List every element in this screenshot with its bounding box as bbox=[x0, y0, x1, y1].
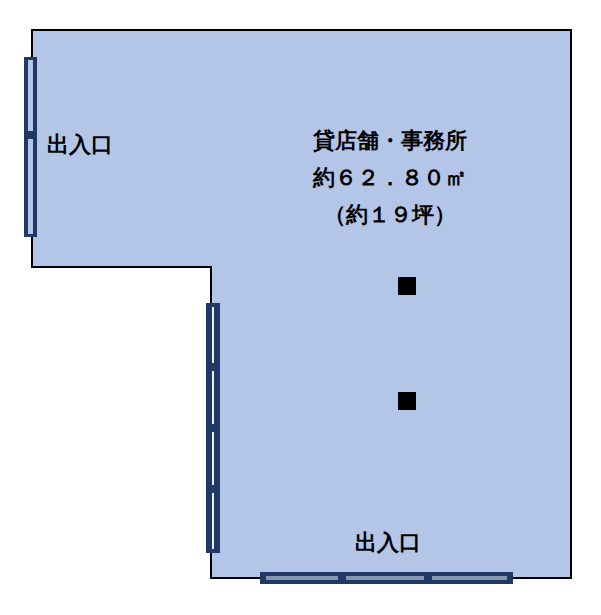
left-entrance-door-icon bbox=[24, 57, 37, 237]
door-pane bbox=[28, 139, 33, 234]
pillar-icon bbox=[398, 277, 416, 295]
window-pane bbox=[212, 493, 214, 549]
door-pane bbox=[432, 576, 507, 580]
property-title: 貸店舗・事務所 bbox=[277, 122, 503, 159]
property-tsubo: （約１９坪） bbox=[277, 196, 503, 233]
property-area: 約６２．８０㎡ bbox=[277, 159, 503, 196]
window-pane bbox=[212, 432, 214, 485]
inner-wall-window-icon bbox=[206, 303, 220, 553]
pillar-icon bbox=[398, 392, 416, 410]
window-pane bbox=[212, 371, 214, 424]
window-pane bbox=[212, 307, 214, 363]
entrance-label-bottom: 出入口 bbox=[338, 531, 438, 555]
room-outline bbox=[0, 0, 601, 615]
door-pane bbox=[346, 576, 424, 580]
room-shape bbox=[32, 30, 571, 578]
door-pane bbox=[266, 576, 338, 580]
floor-plan: 出入口 貸店舗・事務所 約６２．８０㎡ （約１９坪） 出入口 bbox=[0, 0, 601, 615]
property-info: 貸店舗・事務所 約６２．８０㎡ （約１９坪） bbox=[277, 122, 503, 233]
door-pane bbox=[28, 60, 33, 131]
entrance-label-left: 出入口 bbox=[47, 133, 113, 157]
bottom-entrance-door-icon bbox=[260, 572, 513, 584]
